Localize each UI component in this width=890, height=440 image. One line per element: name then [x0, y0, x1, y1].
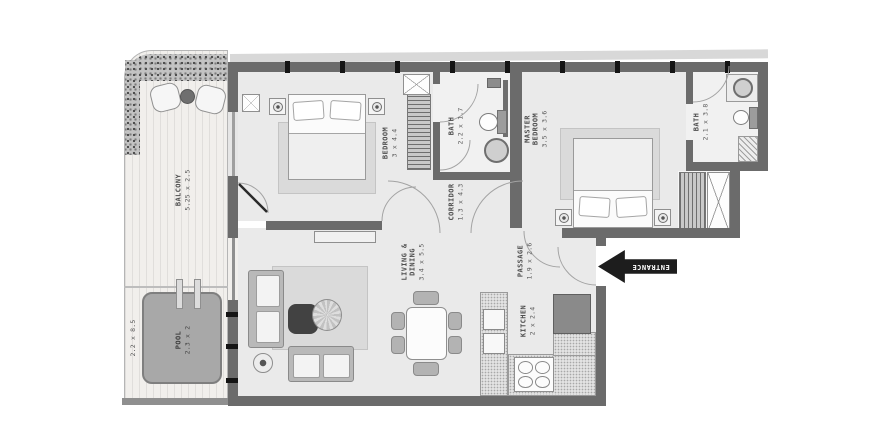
column-tick: [560, 61, 565, 73]
wall-right-upper: [758, 62, 768, 171]
pillow: [578, 196, 610, 218]
toilet: [497, 110, 507, 134]
ac-unit: [403, 74, 430, 95]
column-tick: [395, 61, 400, 73]
room-label-master-bedroom: MASTER BEDROOM 3.5 x 3.6: [523, 103, 548, 155]
roof-band: [230, 49, 768, 63]
wall-pool-bottom: [122, 398, 240, 405]
nightstand: [654, 209, 671, 226]
blanket: [574, 139, 652, 191]
balcony-slider-line: [232, 238, 235, 300]
bedroom-window-line: [232, 112, 235, 176]
toilet-bowl: [479, 113, 498, 131]
column-tick: [670, 61, 675, 73]
shower-head-icon: [487, 78, 501, 88]
lounge-chair: [312, 299, 342, 331]
fridge: [553, 294, 591, 334]
kitchen-counter: [553, 332, 596, 356]
room-label-corridor: CORRIDOR 1.3 x 4.3: [447, 183, 464, 220]
wall-bath-right: [510, 62, 522, 228]
dim-label-pool-deck: 2.2 x 8.5: [129, 319, 137, 356]
toilet-bowl: [733, 110, 749, 125]
wall-closet-right: [730, 162, 740, 238]
bed: [288, 94, 366, 180]
column-tick: [226, 378, 238, 383]
room-label-passage: PASSAGE 1.9 x 2.6: [516, 242, 533, 279]
pool-ladder: [194, 279, 201, 309]
master-bed: [573, 138, 653, 228]
floor-plan: BALCONY 5.25 x 2.5 POOL 2.3 x 2 2.2 x 8.…: [0, 0, 890, 440]
column-tick: [615, 61, 620, 73]
dining-chair: [391, 312, 405, 330]
column-tick: [226, 344, 238, 349]
kitchen-sink: [483, 309, 505, 330]
room-label-pool: POOL 2.3 x 2: [174, 326, 191, 355]
pillow: [329, 100, 361, 121]
dining-chair: [448, 336, 462, 354]
column-tick: [340, 61, 345, 73]
shower: [738, 136, 758, 162]
planter-strip-top: [125, 54, 227, 81]
room-label-bedroom: BEDROOM 3 x 4.4: [381, 127, 398, 159]
column-tick: [226, 312, 238, 317]
bath-door-opening: [433, 84, 440, 122]
column-tick: [725, 61, 730, 73]
nightstand: [368, 98, 385, 115]
wall-bedroom-bottom: [266, 221, 382, 230]
blanket: [289, 133, 365, 179]
nightstand: [555, 209, 572, 226]
room-label-master-bath: BATH 2.1 x 3.8: [692, 103, 709, 140]
wall-master-bottom: [562, 228, 740, 238]
room-label-balcony: BALCONY 5.25 x 2.5: [174, 169, 191, 210]
outdoor-table: [180, 89, 195, 104]
master-wardrobe: [679, 172, 706, 232]
washbasin: [733, 78, 753, 98]
planter-strip-left: [125, 60, 140, 155]
wall-bath-bottom: [440, 172, 510, 180]
sofa: [248, 270, 284, 348]
column-tick: [285, 61, 290, 73]
nightstand: [269, 98, 286, 115]
dining-chair: [448, 312, 462, 330]
dining-chair: [391, 336, 405, 354]
kitchen-sink: [483, 333, 505, 354]
cooktop: [514, 357, 554, 392]
dining-chair: [413, 362, 439, 376]
room-label-kitchen: KITCHEN 2 x 2.4: [519, 305, 536, 337]
sofa: [288, 346, 354, 382]
column-tick: [505, 61, 510, 73]
wall-master-bath-bottom: [686, 162, 768, 171]
side-table: [253, 353, 273, 373]
dining-chair: [413, 291, 439, 305]
entrance-arrow-icon: ENTRANCE: [598, 250, 677, 283]
floor-corridor: [382, 180, 510, 228]
linen-closet: [707, 172, 730, 232]
wardrobe: [407, 94, 431, 170]
room-label-bath: BATH 2.2 x 1.7: [447, 107, 464, 144]
pool-ladder: [176, 279, 183, 309]
toilet: [749, 107, 758, 129]
tv-console: [314, 231, 376, 243]
pillow: [615, 196, 647, 218]
dining-table: [406, 307, 447, 360]
pillow: [292, 100, 324, 121]
wall-bottom: [228, 396, 606, 406]
column-tick: [450, 61, 455, 73]
washbasin: [484, 138, 509, 163]
ac-unit: [242, 94, 260, 112]
entrance-label: ENTRANCE: [632, 263, 670, 271]
room-label-living-dining: LIVING & DINING 3.4 x 5.5: [400, 237, 425, 287]
